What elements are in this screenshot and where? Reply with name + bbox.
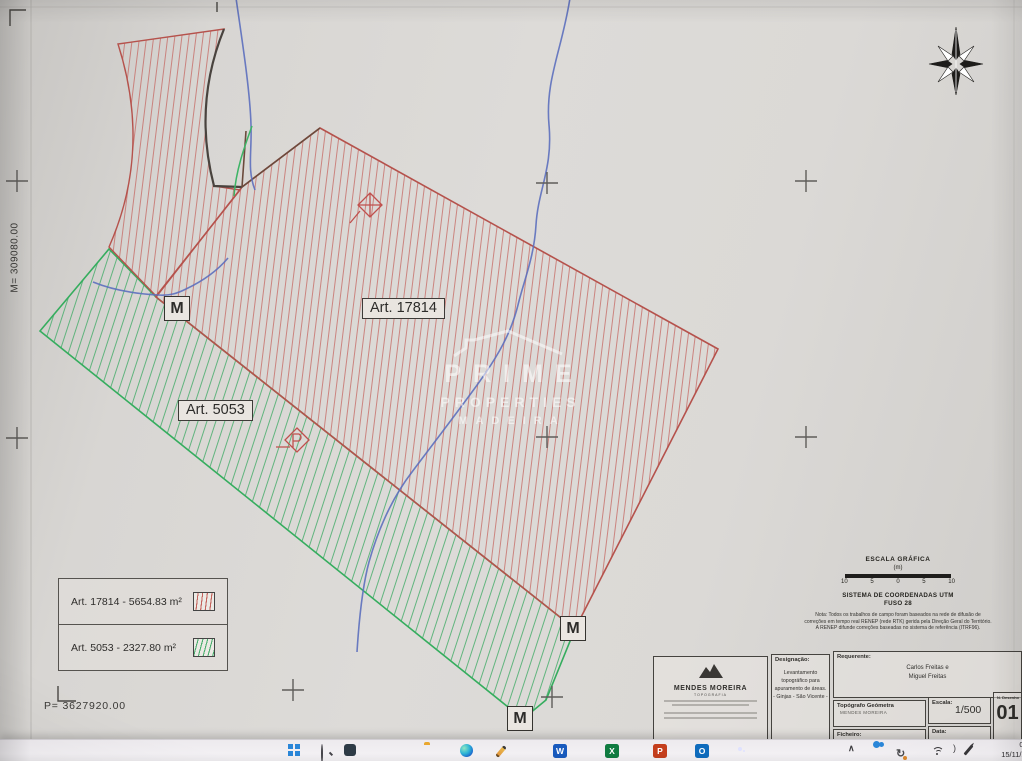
scale-tick: 0 bbox=[896, 579, 899, 585]
windows-taskbar: W X P O ∧ ↻ 08:4 15/11/202 bbox=[0, 739, 1022, 761]
clock-time: 08:4 bbox=[968, 740, 1022, 750]
excel-icon[interactable]: X bbox=[605, 744, 619, 758]
north-compass-icon bbox=[929, 27, 983, 95]
legend-label-5053: Art. 5053 - 2327.80 m² bbox=[71, 642, 176, 654]
requerente-name-line: Miguel Freitas bbox=[834, 673, 1021, 682]
survey-note: Nota: Todos os trabalhos de campo foram … bbox=[772, 612, 1022, 632]
desenho-label: N. Desenho bbox=[994, 693, 1021, 700]
clock-date: 15/11/202 bbox=[968, 750, 1022, 760]
crs-line1: SISTEMA DE COORDENADAS UTM bbox=[772, 592, 1022, 599]
requerente-label: Requerente: bbox=[834, 652, 1021, 660]
company-logo-icon bbox=[697, 663, 725, 679]
parcel-label-5053: Art. 5053 bbox=[178, 400, 253, 421]
ficheiro-label: Ficheiro: bbox=[834, 730, 925, 738]
title-block-escala: Escala: 1/500 bbox=[928, 697, 991, 724]
note-line3: A RENEP difunde correções baseadas no si… bbox=[772, 625, 1022, 632]
designacao-line: topográfico para bbox=[772, 678, 829, 686]
outlook-icon[interactable]: O bbox=[695, 744, 709, 758]
legend-row-17814: Art. 17814 - 5654.83 m² bbox=[59, 579, 227, 624]
scale-tick: 10 bbox=[841, 579, 848, 585]
company-smallprint-line bbox=[664, 717, 757, 719]
speaker-icon[interactable] bbox=[943, 744, 959, 756]
title-block-requerente: Requerente: Carlos Freitas e Miguel Frei… bbox=[833, 651, 1022, 698]
escala-value: 1/500 bbox=[955, 704, 990, 716]
pencil-app-icon[interactable] bbox=[495, 745, 506, 758]
company-smallprint-line bbox=[664, 712, 757, 714]
watermark-house-icon bbox=[448, 328, 568, 358]
word-icon[interactable]: W bbox=[553, 744, 567, 758]
designacao-label: Designação: bbox=[772, 655, 829, 663]
wifi-dot bbox=[936, 753, 938, 755]
topografo-name: MENDES MOREIRA bbox=[834, 710, 925, 715]
watermark-line2: PROPERTIES bbox=[428, 394, 588, 410]
company-name: MENDES MOREIRA bbox=[654, 685, 767, 692]
boundary-marker-m-2: M bbox=[560, 616, 586, 641]
legend-label-17814: Art. 17814 - 5654.83 m² bbox=[71, 596, 182, 608]
green-hatch-swatch-icon bbox=[193, 638, 215, 657]
title-block-designacao: Designação: Levantamento topográfico par… bbox=[771, 654, 830, 741]
scale-title: ESCALA GRÁFICA bbox=[772, 556, 1022, 563]
sync-icon[interactable]: ↻ bbox=[896, 748, 905, 760]
screen: M= 309080.00 P= 3627920.00 Art. 17814 Ar… bbox=[0, 0, 1022, 761]
designacao-line: apuramento de áreas. bbox=[772, 686, 829, 694]
powerpoint-icon[interactable]: P bbox=[653, 744, 667, 758]
parcel-label-17814: Art. 17814 bbox=[362, 298, 445, 319]
red-hatch-swatch-icon bbox=[193, 592, 215, 611]
scale-tick: 5 bbox=[870, 579, 873, 585]
legend: Art. 17814 - 5654.83 m² Art. 5053 - 2327… bbox=[58, 578, 228, 671]
clock[interactable]: 08:4 15/11/202 bbox=[968, 740, 1022, 760]
desenho-number: 01 bbox=[994, 702, 1021, 725]
watermark: PRIME PROPERTIES MADEIRA bbox=[428, 328, 588, 427]
scale-ticks: 10 5 0 5 10 bbox=[841, 579, 955, 585]
designacao-line: Levantamento bbox=[772, 670, 829, 678]
title-block-logo: MENDES MOREIRA TOPOGRAFIA bbox=[653, 656, 768, 741]
watermark-line3: MADEIRA bbox=[428, 415, 588, 427]
search-icon[interactable] bbox=[321, 744, 323, 761]
company-tagline: TOPOGRAFIA bbox=[654, 693, 767, 697]
axis-label-m: M= 309080.00 bbox=[10, 202, 21, 314]
legend-row-5053: Art. 5053 - 2327.80 m² bbox=[59, 624, 227, 670]
scale-bar bbox=[845, 574, 951, 578]
boundary-marker-m-3: M bbox=[507, 706, 533, 731]
title-block-topografo: Topógrafo Geómetra MENDES MOREIRA bbox=[833, 700, 926, 727]
scale-unit: (m) bbox=[772, 565, 1022, 571]
scale-block: ESCALA GRÁFICA (m) 10 5 0 5 10 SISTEMA D… bbox=[772, 556, 1022, 632]
requerente-name-line: Carlos Freitas e bbox=[834, 664, 1021, 673]
dark-app-icon[interactable] bbox=[344, 744, 356, 756]
crs-line2: FUSO 28 bbox=[772, 600, 1022, 607]
tray-chevron-up-icon[interactable]: ∧ bbox=[848, 743, 855, 754]
watermark-line1: PRIME bbox=[428, 360, 588, 389]
title-block-desenho: N. Desenho 01 bbox=[993, 692, 1022, 741]
topografo-label: Topógrafo Geómetra bbox=[834, 701, 925, 709]
company-smallprint-line bbox=[664, 700, 757, 702]
axis-label-p: P= 3627920.00 bbox=[44, 700, 126, 712]
scale-tick: 5 bbox=[922, 579, 925, 585]
edge-browser-icon[interactable] bbox=[460, 744, 473, 757]
data-label: Data: bbox=[929, 727, 990, 735]
company-smallprint-line bbox=[672, 704, 749, 706]
designacao-line: - Ginjas - São Vicente - bbox=[772, 694, 829, 702]
boundary-marker-m-1: M bbox=[164, 296, 190, 321]
scale-tick: 10 bbox=[948, 579, 955, 585]
